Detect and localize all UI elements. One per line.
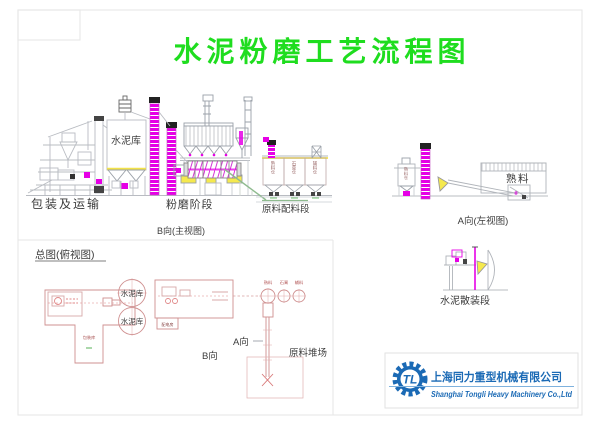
label-plan-feed-bin-2: 石膏 [280,279,288,286]
label-batching-silo-1: 熟料仓 [270,160,276,175]
label-batching-silo-3: 辅料仓 [312,160,318,175]
label-batching-section: 原料配料段 [262,203,310,215]
main-elevation-view: 水泥库 [26,95,332,236]
caption-a-view: A向(左视图) [458,215,509,227]
a-view-drawing [392,143,548,200]
plan-view: 总图(俯视图) [35,248,327,398]
label-plan-power-room: 配电房 [162,321,174,327]
label-cement-silo: 水泥库 [111,134,141,147]
label-plan-b-direction: B向 [202,350,218,362]
label-plan-cement-silo-1: 水泥库 [121,288,144,298]
logo-monogram: TL [403,373,418,387]
company-logo-block: TL 上海同力重型机械有限公司 Shanghai Tongli Heavy Ma… [385,353,578,408]
label-plan-feed-bin-3: 辅料 [295,279,304,286]
label-stockyard: 原料堆场 [289,347,327,359]
caption-b-view: B向(主视图) [157,225,205,236]
label-batching-silo-2: 石膏仓 [291,161,297,175]
grinding-stage-drawing [174,95,266,200]
label-plan-cement-silo-2: 水泥库 [121,316,144,326]
bulk-loading-drawing [443,247,508,290]
packaging-transport-drawing [28,116,112,195]
drawing-canvas: 水泥粉磨工艺流程图 [0,0,600,424]
caption-plan-view: 总图(俯视图) [35,248,95,261]
label-clinker-silo: 熟料仓 [403,166,409,180]
label-plan-a-direction: A向 [233,336,249,348]
label-packaging-transport: 包装及运输 [31,196,101,211]
label-clinker-shed: 熟料 [506,172,530,185]
bulk-loading-section: 水泥散装段 [440,247,508,307]
label-plan-packaging-room: 包装库 [83,334,96,341]
label-plan-feed-bin-1: 熟料 [264,279,273,286]
a-left-view: 熟料 熟料仓 A向(左视图) [392,143,548,227]
page-title: 水泥粉磨工艺流程图 [173,36,470,67]
company-name-en: Shanghai Tongli Heavy Machinery Co.,Ltd [431,390,573,399]
company-name-cn: 上海同力重型机械有限公司 [431,370,562,384]
label-grinding-stage: 粉磨阶段 [166,197,213,211]
process-flow-drawing-page: 水泥粉磨工艺流程图 [0,0,600,424]
caption-bulk-loading: 水泥散装段 [440,294,490,307]
